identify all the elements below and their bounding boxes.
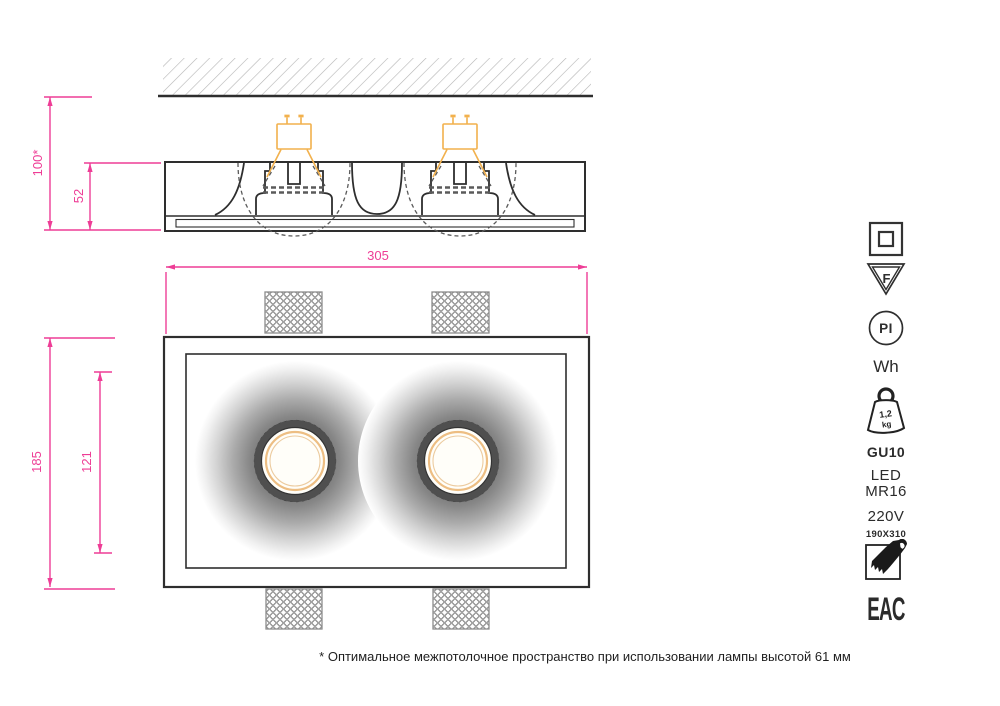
dimension-inner-height: 121 (73, 447, 99, 477)
luminaire-spec-sheet: 100* 52 305 185 121 F PI Wh 1,2 kg GU10 (0, 0, 1000, 706)
front-view (164, 292, 589, 629)
pi-mark-icon: PI (846, 309, 926, 347)
spotlight-left (255, 421, 336, 502)
dimension-fixture-depth: 52 (65, 181, 91, 211)
f-mark-letter: F (883, 271, 891, 286)
pi-mark-letters: PI (879, 321, 893, 336)
color-label: Wh (846, 357, 926, 377)
weight-unit: kg (881, 419, 892, 429)
class-ii-insulation-icon (846, 221, 926, 257)
cutout-saw-icon (846, 539, 926, 583)
socket-type-label: GU10 (846, 444, 926, 460)
lamp-type-line1: LED (846, 468, 926, 484)
lamp-type-line2: MR16 (846, 484, 926, 500)
dimension-height: 185 (23, 447, 49, 477)
weight-value: 1,2 (879, 408, 893, 420)
dimension-ceiling-space: 100* (24, 148, 50, 178)
cross-section-view (165, 116, 585, 236)
eac-certification-mark: EAC (846, 594, 926, 625)
lamp-type-label: LED MR16 (846, 468, 926, 500)
weight-icon: 1,2 kg (846, 386, 926, 438)
footnote-text: * Оптимальное межпотолочное пространство… (285, 649, 885, 664)
spotlight-right (418, 421, 499, 502)
eac-letters: EAC (867, 590, 904, 629)
voltage-label: 220V (846, 508, 926, 525)
dimension-width: 305 (353, 246, 403, 264)
ceiling-hatch (158, 58, 593, 96)
f-mark-icon: F (846, 262, 926, 296)
